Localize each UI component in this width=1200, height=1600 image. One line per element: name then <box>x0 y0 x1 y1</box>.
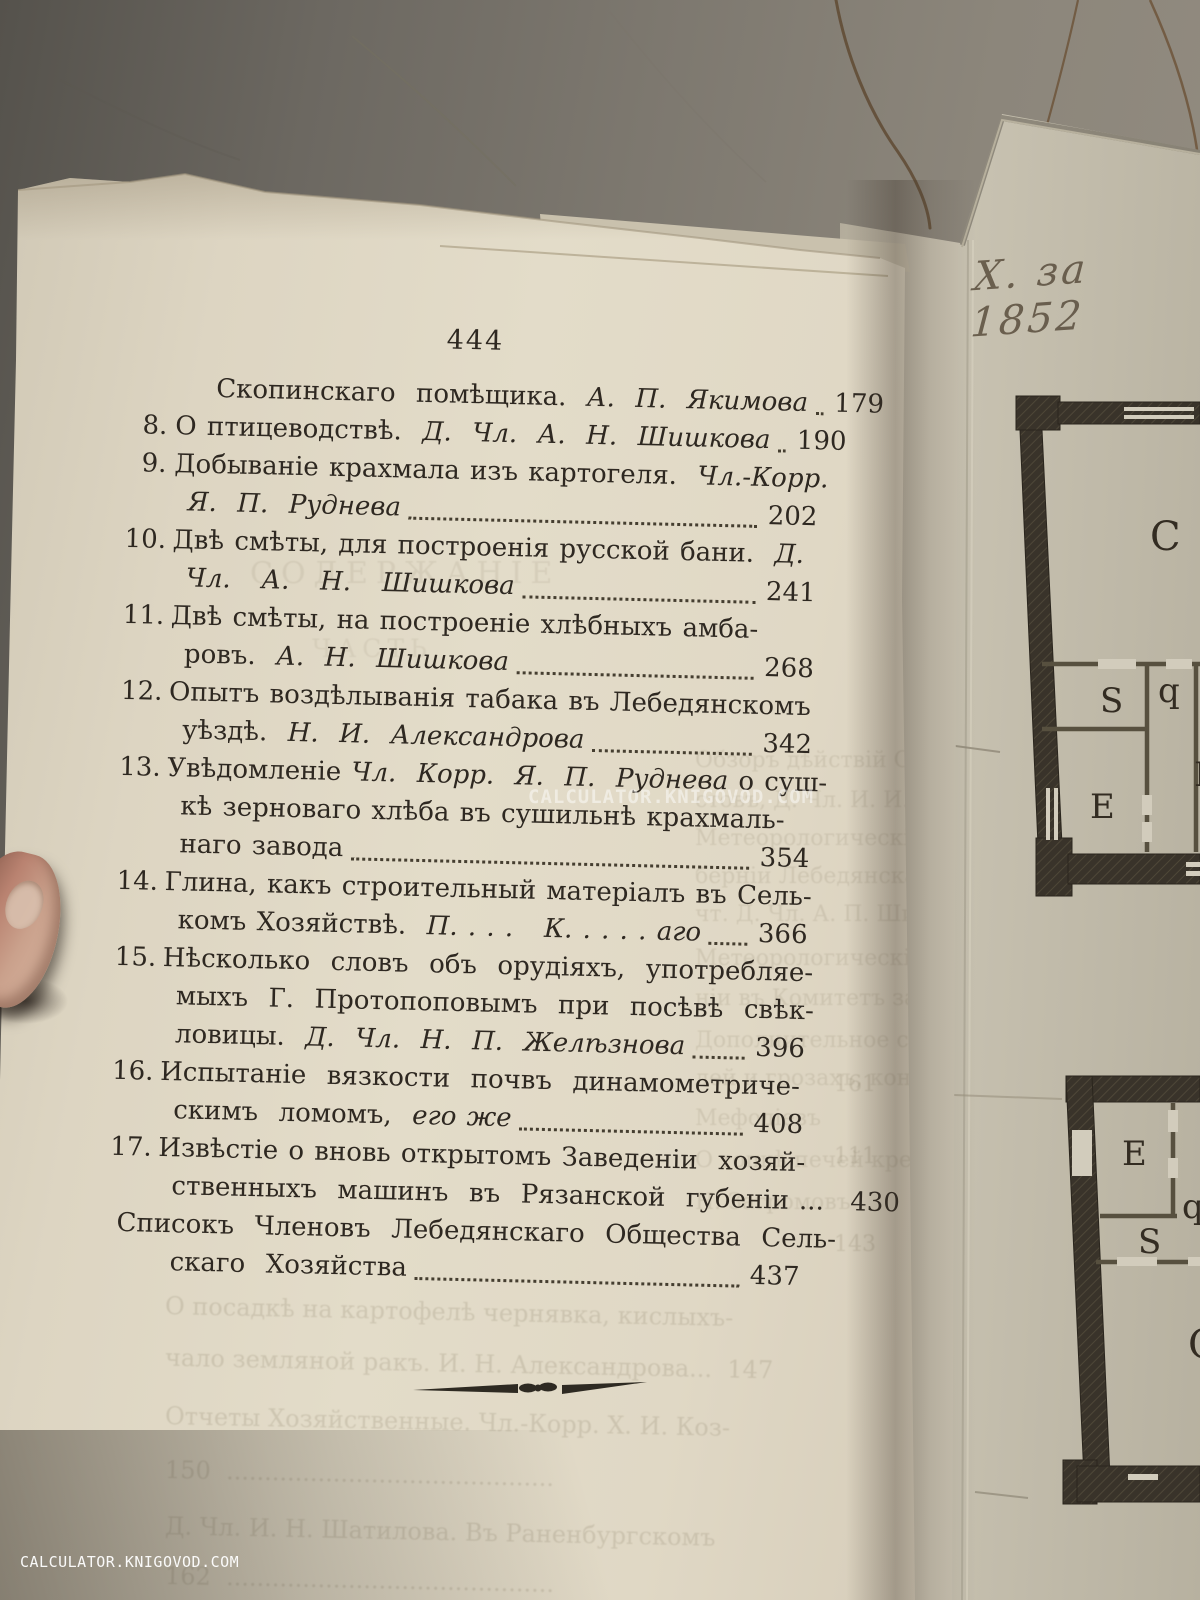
toc-number: 9. <box>126 444 175 483</box>
room-label: C <box>1188 1322 1200 1368</box>
room-label: C <box>1150 514 1181 560</box>
toc-number <box>108 1269 156 1270</box>
toc-number <box>114 1003 162 1004</box>
toc-number: 14. <box>116 862 165 901</box>
room-label: S <box>1100 681 1123 721</box>
toc-leader <box>592 739 752 756</box>
toc-number <box>116 927 164 928</box>
ghost-text: О посадкѣ на картофелѣ чернявка, кислыхъ… <box>165 1292 734 1332</box>
toc-list: Скопинскаго помѣщика. А. П. Якимова1798.… <box>107 368 820 1296</box>
toc-leader <box>351 847 749 869</box>
watermark-center: CALCULATOR.KNIGOVOD.COM <box>528 786 814 808</box>
toc-page-ref: 354 <box>753 839 810 878</box>
book-photo: СОДЕРЖАНІЕЧАСТЬОбзоръ дѣйствій Общества … <box>0 0 1200 1600</box>
toc-leader <box>831 1211 839 1221</box>
toc-number: 11. <box>122 596 171 635</box>
toc-page-ref: 190 <box>790 422 847 461</box>
toc-number: 8. <box>127 406 176 445</box>
ghost-text: чало земляной ракъ. И. Н. Александрова..… <box>165 1344 774 1385</box>
toc-number: 15. <box>114 938 163 977</box>
toc-number <box>120 737 168 738</box>
toc-leader <box>415 1267 740 1288</box>
toc-text: скаго Хозяйства <box>155 1243 407 1287</box>
room-label: B <box>1194 755 1200 795</box>
toc-number <box>128 395 176 396</box>
toc-page-ref: 366 <box>751 915 808 954</box>
toc-leader <box>709 932 748 946</box>
gutter-shadow <box>846 180 976 1600</box>
toc-number: 13. <box>119 748 168 787</box>
room-label: E <box>1122 1134 1147 1174</box>
toc-leader <box>519 1117 743 1135</box>
room-label: q <box>1182 1187 1200 1227</box>
toc-number: 16. <box>112 1052 161 1091</box>
toc-number: 10. <box>124 520 173 559</box>
room-label: q <box>1158 671 1180 711</box>
page-number: 444 <box>129 314 822 368</box>
toc-leader <box>693 1045 745 1059</box>
room-label: E <box>1090 787 1115 827</box>
toc-page-ref: 408 <box>747 1105 804 1144</box>
toc-number <box>117 851 165 852</box>
toc-number: 17. <box>110 1128 159 1167</box>
toc-text: Я. П. Руднева <box>173 483 401 526</box>
toc-number <box>111 1117 159 1118</box>
toc-page-ref: 202 <box>761 497 818 536</box>
toc-page-ref: 342 <box>756 725 813 764</box>
toc-page-ref: 437 <box>743 1257 800 1296</box>
toc-page-ref: 396 <box>748 1029 805 1068</box>
watermark-corner: CALCULATOR.KNIGOVOD.COM <box>20 1553 239 1571</box>
toc-number <box>109 1193 157 1194</box>
toc-page-ref: 241 <box>759 573 816 612</box>
toc-number <box>125 509 173 510</box>
toc-number: 12. <box>121 672 170 711</box>
floor-plan-upper: C S q E B <box>1016 396 1200 896</box>
toc-number <box>113 1041 161 1042</box>
bottom-shadow <box>0 1430 980 1600</box>
toc-number <box>122 661 170 662</box>
toc-text: наго завода <box>165 825 344 867</box>
toc-leader <box>522 585 755 603</box>
toc-number <box>124 585 172 586</box>
floor-plan-lower: E q S C <box>1063 1076 1200 1504</box>
toc-number <box>118 813 166 814</box>
toc-leader <box>517 661 754 680</box>
fingernail <box>0 875 50 935</box>
toc-page-ref: 268 <box>757 649 814 688</box>
handwritten-note: Х. за 1852 <box>969 237 1200 346</box>
room-label: S <box>1138 1222 1161 1262</box>
toc-leader <box>816 402 824 415</box>
toc-leader <box>778 439 786 452</box>
toc-leader <box>409 507 758 528</box>
